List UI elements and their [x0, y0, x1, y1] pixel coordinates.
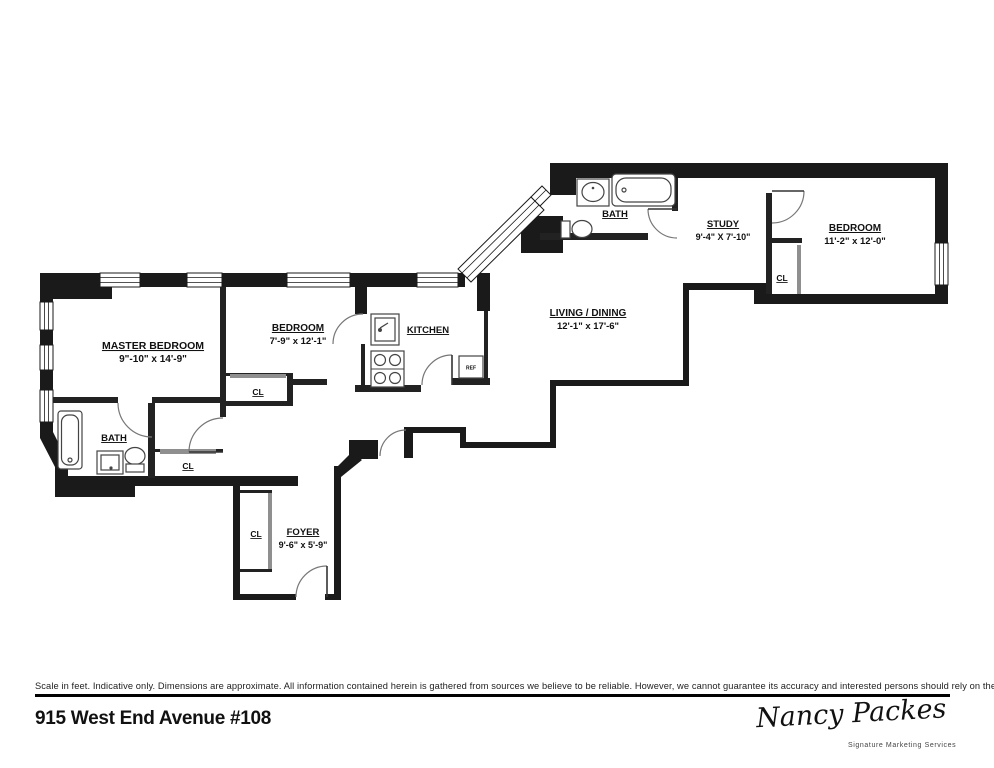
stove-icon: [371, 351, 404, 387]
brand-signature: Nancy Packes: [755, 693, 956, 734]
fridge-label: REF: [466, 366, 476, 372]
closet-label-foyer: CL: [250, 529, 261, 539]
floor-plan: REF MASTER BEDROOM 9"-10" x 14'-9" BEDRO…: [0, 0, 994, 670]
room-label-master-bedroom: MASTER BEDROOM: [102, 340, 204, 352]
disclaimer-text: Scale in feet. Indicative only. Dimensio…: [35, 681, 965, 691]
brand-tagline: Signature Marketing Services: [848, 742, 956, 749]
closet-slider-bedroom: [230, 374, 286, 378]
toilet-icon: [125, 448, 145, 473]
room-dims-study: 9'-4" X 7'-10": [696, 232, 751, 242]
bath-sink-icon-upper: [577, 179, 609, 206]
room-label-bath-upper: BATH: [602, 209, 628, 220]
closet-label-bedroom-right: CL: [776, 273, 787, 283]
closet-label-bedroom: CL: [252, 387, 263, 397]
closet-slider-foyer: [268, 493, 272, 569]
room-dims-living-dining: 12'-1" x 17'-6": [557, 321, 619, 332]
room-label-living-dining: LIVING / DINING: [550, 308, 627, 319]
room-label-study: STUDY: [707, 219, 740, 230]
closet-slider-bedroom-right: [797, 245, 801, 294]
room-dims-bedroom-right: 11'-2" x 12'-0": [824, 236, 886, 247]
footer-divider: [35, 694, 950, 697]
bathtub-icon: [58, 411, 82, 469]
bathtub-icon-upper: [612, 174, 675, 206]
kitchen-sink-icon: [371, 314, 399, 345]
room-dims-bedroom-mid: 7'-9" x 12'-1": [270, 336, 327, 347]
walls-layer: [40, 163, 948, 600]
sink-icon: [97, 451, 123, 474]
room-dims-foyer: 9'-6" x 5'-9": [279, 540, 328, 550]
interior-walls-layer: [53, 178, 802, 572]
room-label-kitchen: KITCHEN: [407, 325, 449, 336]
page-title: 915 West End Avenue #108: [35, 708, 271, 730]
fridge-icon: REF: [459, 356, 483, 378]
room-label-bath-lower: BATH: [101, 433, 127, 444]
room-dims-master-bedroom: 9"-10" x 14'-9": [119, 354, 187, 365]
toilet-icon-upper: [561, 221, 592, 239]
room-label-bedroom-right: BEDROOM: [829, 223, 881, 234]
room-label-foyer: FOYER: [287, 527, 320, 538]
closet-label-hall: CL: [182, 461, 193, 471]
room-label-bedroom-mid: BEDROOM: [272, 323, 324, 334]
